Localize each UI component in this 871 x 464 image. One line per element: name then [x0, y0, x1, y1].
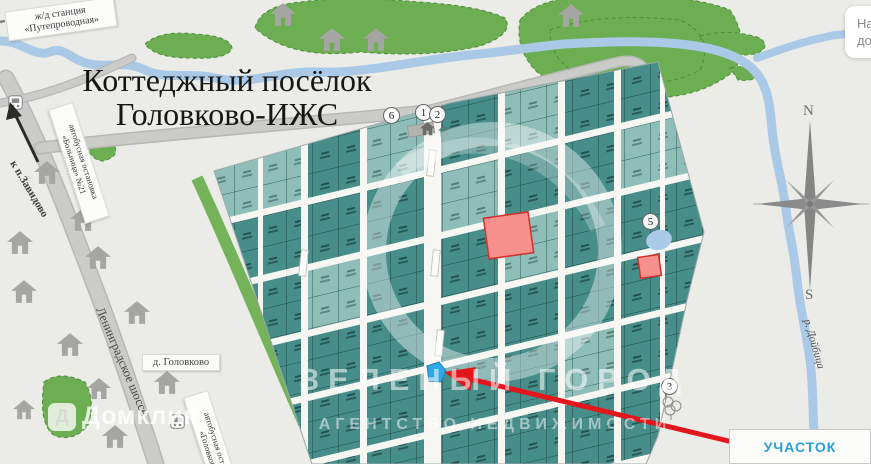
marker-5: 5 [642, 213, 659, 230]
portal-logo-icon: Д [48, 403, 76, 431]
info-tooltip-card[interactable]: На до [845, 6, 871, 58]
marker-2: 2 [429, 106, 446, 123]
tooltip-line2: до [857, 32, 871, 49]
marker-6: 6 [383, 107, 400, 124]
agency-watermark-name: ЗЕЛЕНЫЙ ГОРОД [260, 362, 730, 398]
highlighted-plot [483, 212, 533, 259]
highlighted-plot-small [638, 255, 662, 279]
village-label: д. Головково [142, 354, 220, 371]
tooltip-line1: На [857, 15, 871, 32]
cottage-village-map[interactable]: Коттеджный посёлок Головково-ИЖС ж/д ста… [0, 0, 871, 464]
map-title: Коттеджный посёлок Головково-ИЖС [62, 64, 392, 132]
portal-watermark: Д Домклик [48, 402, 197, 431]
map-title-line2: Головково-ИЖС [62, 98, 392, 132]
portal-logo-text: Домклик [82, 402, 197, 431]
compass-north-label: N [803, 103, 814, 120]
compass-south-label: S [805, 287, 813, 304]
direction-arrow [0, 90, 60, 170]
agency-watermark-subtitle: АГЕНТСТВО НЕДВИЖИМОСТИ [260, 416, 730, 434]
plot-callout-box: УЧАСТОК [729, 429, 871, 464]
map-title-line1: Коттеджный посёлок [62, 64, 392, 98]
